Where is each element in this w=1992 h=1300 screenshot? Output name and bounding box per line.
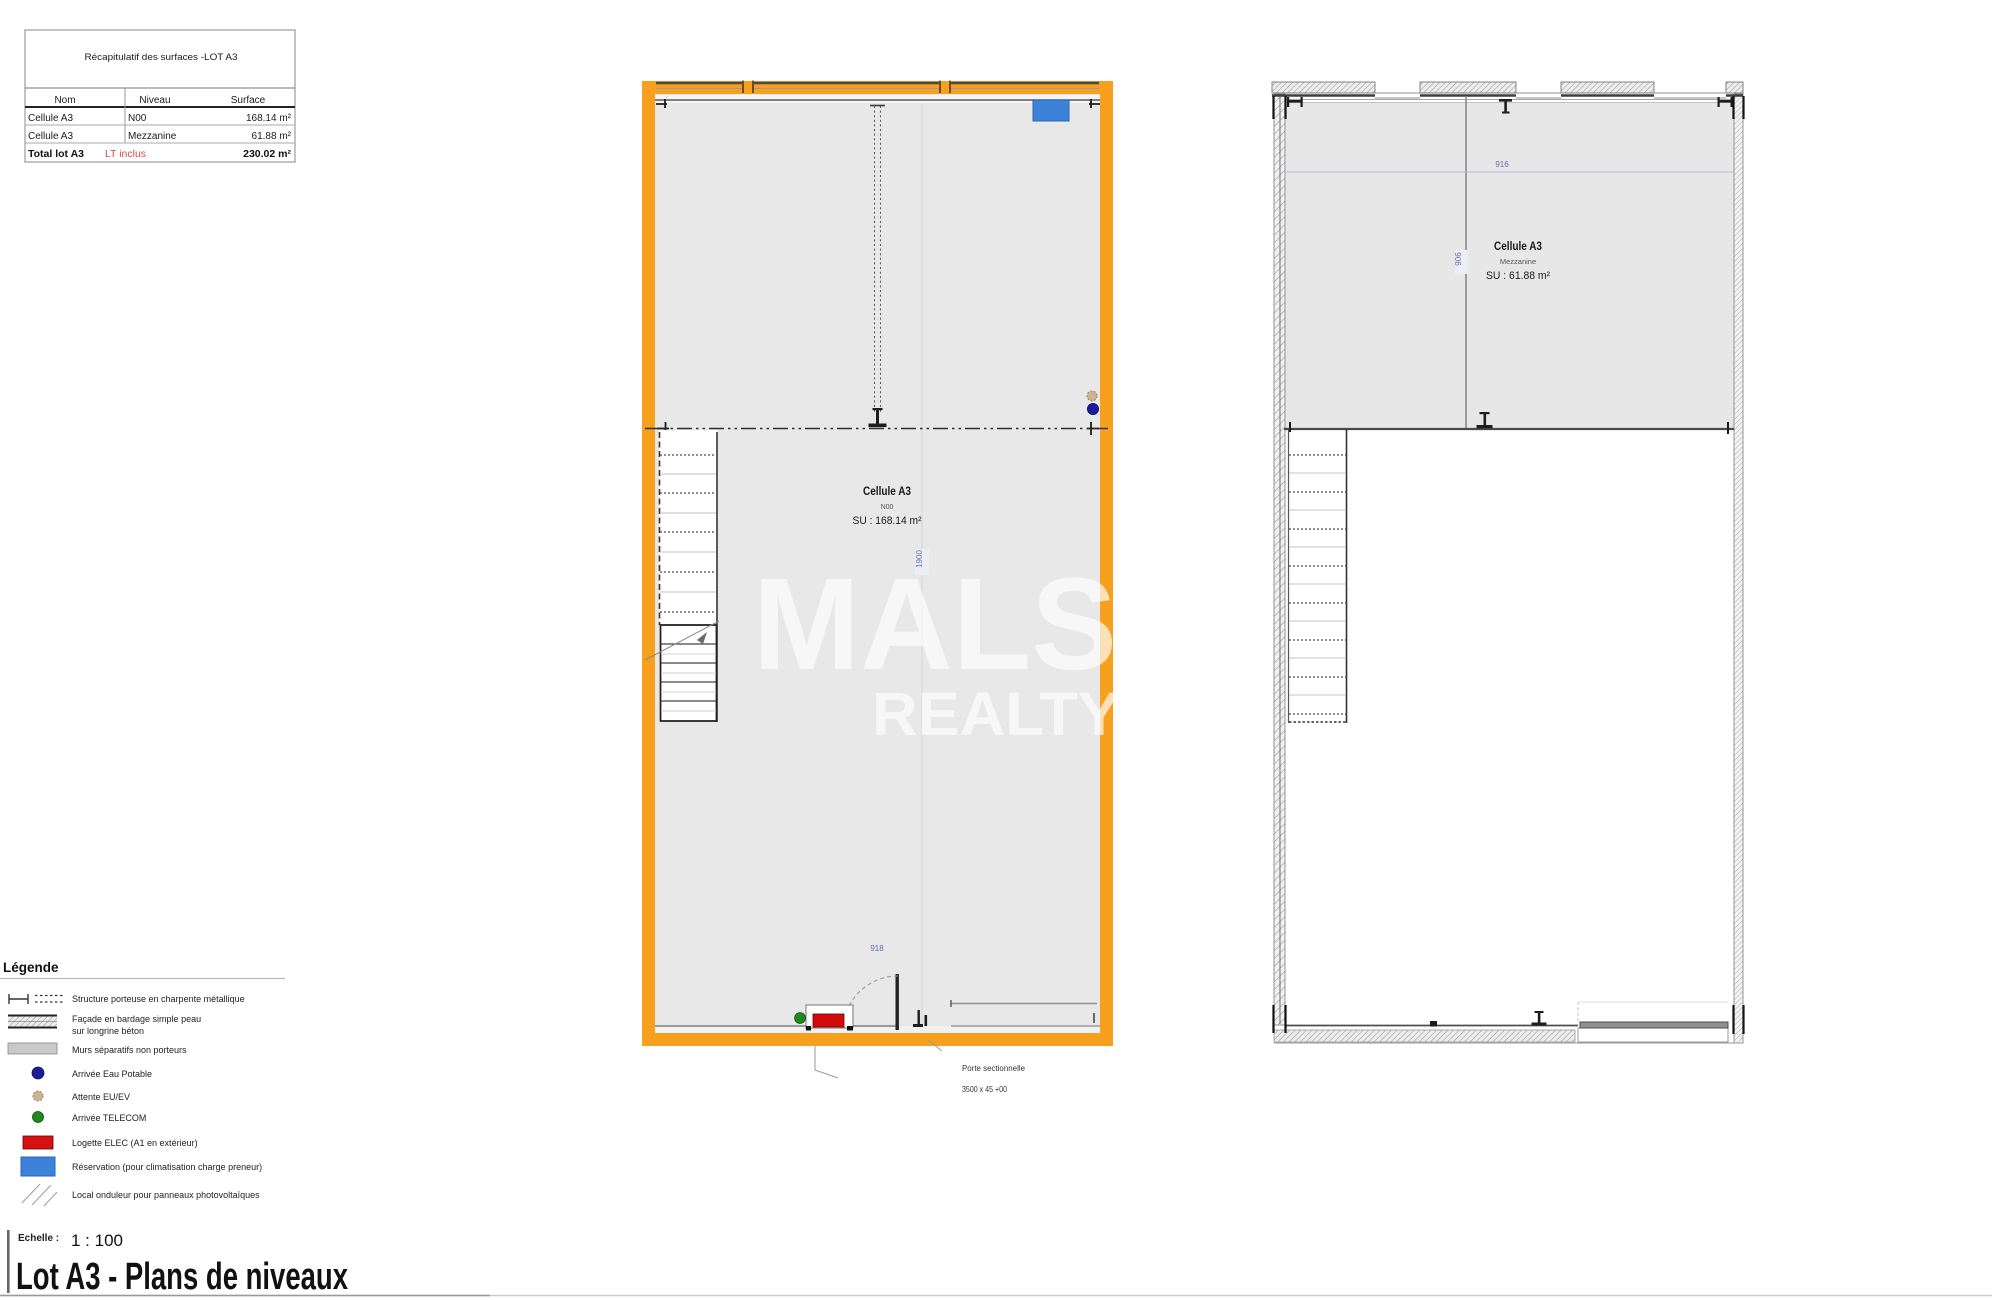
svg-text:Légende: Légende <box>3 960 59 975</box>
svg-text:LT inclus: LT inclus <box>105 148 146 160</box>
svg-text:Attente EU/EV: Attente EU/EV <box>72 1092 130 1102</box>
svg-text:230.02 m²: 230.02 m² <box>243 148 291 160</box>
svg-text:Cellule A3: Cellule A3 <box>1494 239 1542 253</box>
svg-text:Façade en bardage simple peau: Façade en bardage simple peau <box>72 1014 201 1024</box>
svg-text:Surface: Surface <box>231 95 266 106</box>
svg-text:Réservation (pour climatisatio: Réservation (pour climatisation charge p… <box>72 1162 262 1172</box>
svg-text:Cellule A3: Cellule A3 <box>28 131 73 142</box>
svg-text:Niveau: Niveau <box>139 95 170 106</box>
svg-text:1 : 100: 1 : 100 <box>71 1231 123 1250</box>
svg-text:Nom: Nom <box>54 95 75 106</box>
svg-text:61.88 m²: 61.88 m² <box>252 131 292 142</box>
svg-text:Murs séparatifs non porteurs: Murs séparatifs non porteurs <box>72 1045 187 1055</box>
svg-text:sur longrine béton: sur longrine béton <box>72 1026 144 1036</box>
svg-text:Mezzanine: Mezzanine <box>128 131 177 142</box>
svg-text:SU : 168.14 m²: SU : 168.14 m² <box>853 515 922 527</box>
svg-text:Cellule A3: Cellule A3 <box>28 113 73 124</box>
svg-text:906: 906 <box>1454 252 1463 266</box>
svg-text:Arrivée Eau Potable: Arrivée Eau Potable <box>72 1069 152 1079</box>
svg-text:REALTY: REALTY <box>872 680 1120 748</box>
svg-text:SU : 61.88 m²: SU : 61.88 m² <box>1486 270 1550 282</box>
svg-text:Echelle :: Echelle : <box>18 1233 59 1244</box>
svg-text:Structure porteuse en charpent: Structure porteuse en charpente métalliq… <box>72 994 245 1004</box>
svg-text:Cellule A3: Cellule A3 <box>863 484 911 498</box>
svg-text:N00: N00 <box>128 113 147 124</box>
svg-text:Mezzanine: Mezzanine <box>1500 257 1536 266</box>
svg-text:Lot A3 - Plans de niveaux: Lot A3 - Plans de niveaux <box>16 1256 348 1298</box>
svg-text:N00: N00 <box>881 504 894 511</box>
svg-text:Arrivée TELECOM: Arrivée TELECOM <box>72 1113 146 1123</box>
svg-text:Récapitulatif des surfaces -LO: Récapitulatif des surfaces -LOT A3 <box>85 52 238 63</box>
svg-text:916: 916 <box>1495 160 1509 169</box>
svg-text:3500 x 45 +00: 3500 x 45 +00 <box>962 1084 1007 1094</box>
svg-text:MALS: MALS <box>753 550 1117 697</box>
svg-text:918: 918 <box>870 944 884 953</box>
svg-text:Total lot A3: Total lot A3 <box>28 148 84 160</box>
svg-text:Porte sectionnelle: Porte sectionnelle <box>962 1063 1025 1073</box>
svg-text:Logette ELEC (A1 en extérieur): Logette ELEC (A1 en extérieur) <box>72 1138 198 1148</box>
svg-text:168.14 m²: 168.14 m² <box>246 113 292 124</box>
svg-text:Local onduleur pour panneaux p: Local onduleur pour panneaux photovoltaï… <box>72 1190 260 1200</box>
